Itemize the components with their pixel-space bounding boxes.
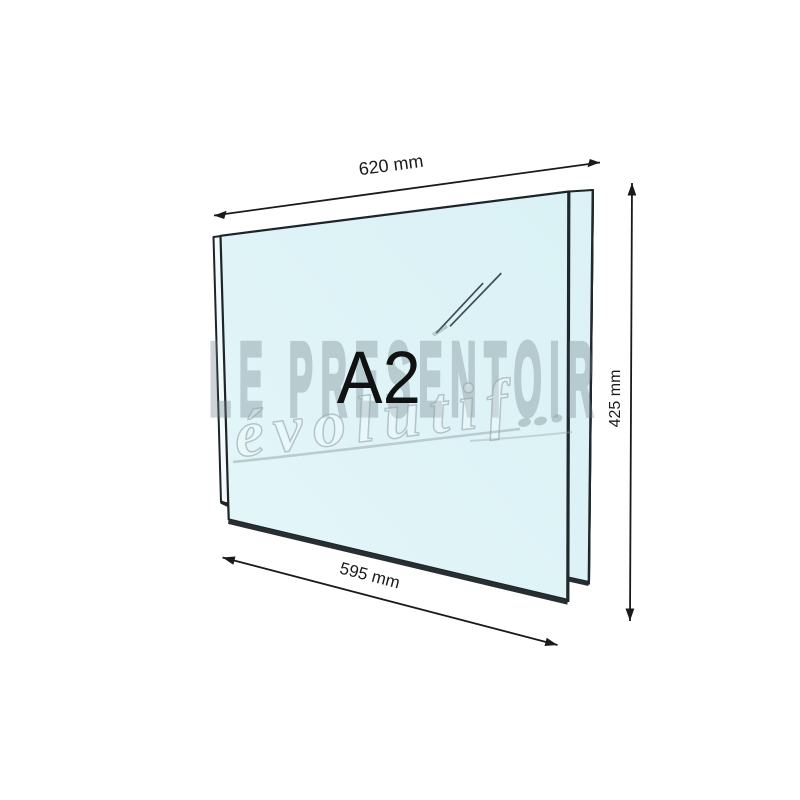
svg-text:425 mm: 425 mm bbox=[607, 370, 624, 428]
svg-text:A2: A2 bbox=[337, 336, 421, 419]
